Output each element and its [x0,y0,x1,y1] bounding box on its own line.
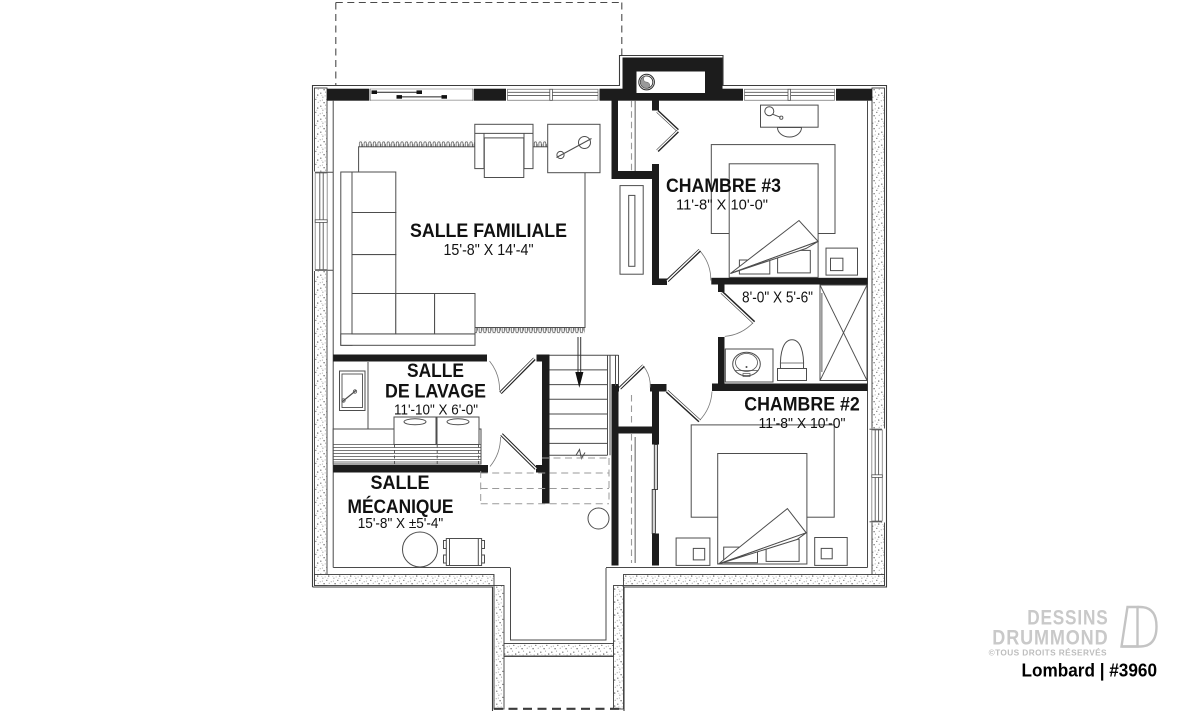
svg-text:CHAMBRE #2: CHAMBRE #2 [744,394,860,416]
svg-text:11'-8" X 10'-0": 11'-8" X 10'-0" [759,415,846,432]
svg-text:15'-8" X 14'-4": 15'-8" X 14'-4" [444,242,534,259]
svg-text:CHAMBRE #3: CHAMBRE #3 [666,175,781,197]
svg-text:SALLE: SALLE [371,472,430,494]
svg-text:©TOUS DROITS RÉSERVÉS: ©TOUS DROITS RÉSERVÉS [989,648,1107,658]
svg-text:SALLE: SALLE [407,360,464,382]
svg-text:11'-10" X 6'-0": 11'-10" X 6'-0" [394,403,478,419]
svg-text:DE LAVAGE: DE LAVAGE [385,381,486,403]
svg-text:SALLE FAMILIALE: SALLE FAMILIALE [410,220,567,242]
svg-text:8'-0" X 5'-6": 8'-0" X 5'-6" [742,290,813,307]
svg-text:11'-8" X 10'-0": 11'-8" X 10'-0" [676,197,768,214]
svg-text:15'-8" X ±5'-4": 15'-8" X ±5'-4" [358,515,444,532]
svg-text:Lombard | #3960: Lombard | #3960 [1022,660,1158,681]
svg-text:DRUMMOND: DRUMMOND [992,626,1108,650]
